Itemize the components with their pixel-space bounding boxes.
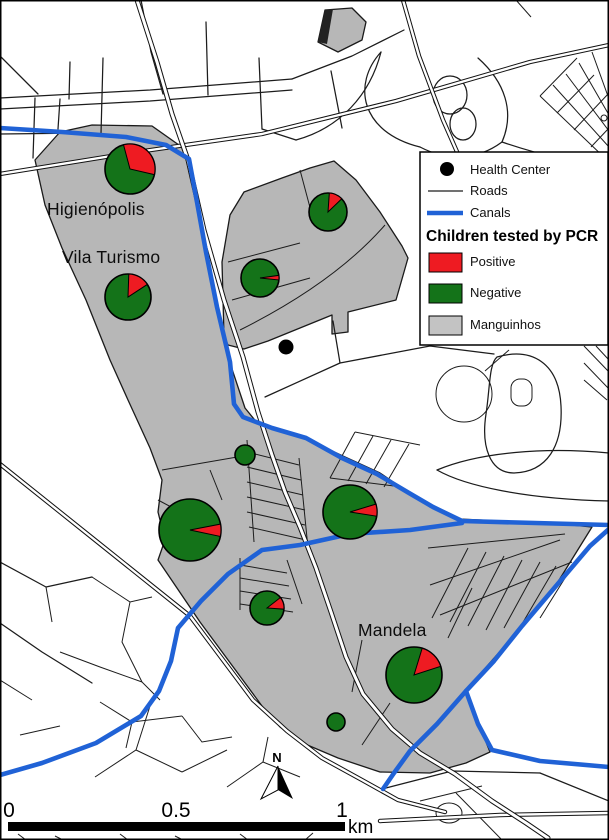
- legend-negative-label: Negative: [470, 285, 521, 300]
- label-vila-turismo: Vila Turismo: [62, 247, 160, 267]
- manguinhos-swatch: [429, 316, 462, 335]
- map-canvas: Higienópolis Vila Turismo Mandela Health…: [0, 0, 609, 840]
- study-area-map: Higienópolis Vila Turismo Mandela Health…: [0, 0, 609, 840]
- pie-chart-northeast-upper: [309, 193, 347, 231]
- pie-chart-vila-turismo: [105, 274, 151, 320]
- pie-chart-higienopolis: [105, 144, 155, 194]
- legend-manguinhos-label: Manguinhos: [470, 317, 541, 332]
- label-higienopolis: Higienópolis: [47, 199, 145, 219]
- pie-negative-share: [327, 713, 345, 731]
- pie-chart-northeast-lower: [241, 259, 279, 297]
- legend-health-center-label: Health Center: [470, 162, 551, 177]
- label-mandela: Mandela: [358, 620, 427, 640]
- legend-title: Children tested by PCR: [426, 228, 598, 245]
- legend: Health Center Roads Canals Children test…: [420, 152, 608, 345]
- legend-roads-label: Roads: [470, 183, 508, 198]
- scale-bar-rect: [8, 822, 345, 831]
- pie-negative-share: [235, 445, 255, 465]
- scale-tick-0: 0: [3, 799, 15, 822]
- pie-chart-south-tiny: [327, 713, 345, 731]
- pie-chart-south-small: [250, 591, 284, 625]
- scale-tick-05: 0.5: [161, 799, 190, 822]
- north-arrow-label: N: [272, 750, 281, 765]
- scale-unit-label: km: [348, 817, 373, 838]
- health-center-dot: [279, 340, 294, 355]
- negative-swatch: [429, 284, 462, 303]
- legend-canals-label: Canals: [470, 205, 511, 220]
- pie-chart-west-large: [159, 499, 221, 561]
- pie-chart-central: [323, 485, 377, 539]
- pie-chart-center-small: [235, 445, 255, 465]
- scale-tick-1: 1: [336, 799, 348, 822]
- positive-swatch: [429, 253, 462, 272]
- pie-chart-mandela: [386, 647, 442, 703]
- health-center-dots: [279, 340, 294, 355]
- legend-positive-label: Positive: [470, 254, 516, 269]
- health-center-icon: [440, 162, 454, 176]
